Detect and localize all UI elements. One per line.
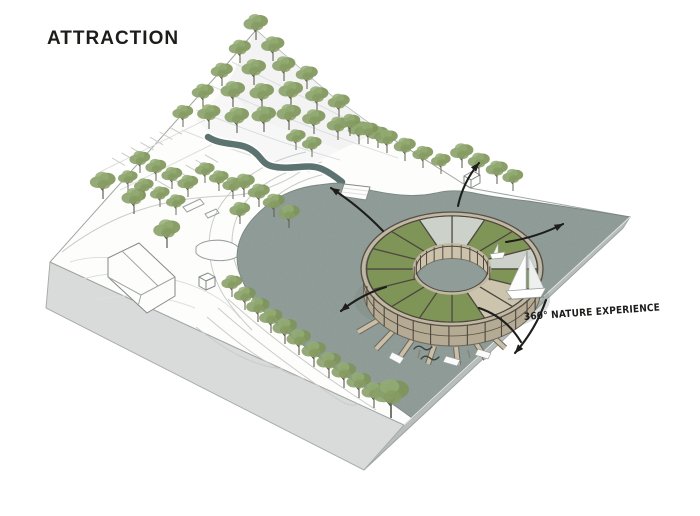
attraction-diagram: ATTRACTION 360° NATURE EXPERIENCE [0, 0, 700, 516]
page-title: ATTRACTION [47, 28, 179, 50]
site-axonometric-scene [0, 0, 700, 516]
storage-building [199, 273, 215, 290]
tree [502, 169, 523, 191]
pond [196, 240, 240, 260]
tree [244, 14, 269, 40]
